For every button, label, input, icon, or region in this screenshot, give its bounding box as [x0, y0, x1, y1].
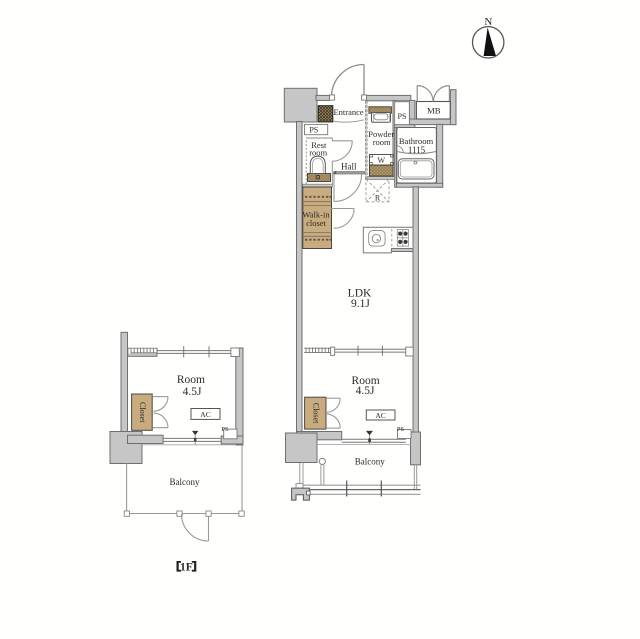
svg-text:closet: closet	[306, 218, 326, 228]
svg-text:1F: 1F	[180, 562, 193, 574]
svg-text:Room: Room	[177, 374, 205, 386]
svg-text:AC: AC	[200, 410, 210, 419]
svg-text:W: W	[378, 156, 386, 165]
svg-text:1115: 1115	[408, 145, 426, 155]
svg-text:R: R	[375, 194, 381, 203]
svg-text:4.5J: 4.5J	[183, 386, 202, 398]
svg-text:PS: PS	[398, 112, 407, 121]
svg-text:AC: AC	[375, 411, 385, 420]
svg-text:MB: MB	[427, 105, 441, 115]
svg-text:Closet: Closet	[138, 402, 147, 423]
svg-text:room: room	[373, 137, 391, 147]
svg-text:PS: PS	[309, 126, 318, 135]
svg-text:9.1J: 9.1J	[351, 298, 370, 310]
svg-text:Hall: Hall	[341, 162, 357, 172]
svg-text:PS: PS	[221, 426, 229, 433]
svg-text:N: N	[484, 16, 492, 28]
svg-text:Closet: Closet	[311, 403, 320, 424]
svg-text:room: room	[309, 147, 327, 157]
svg-text:4.5J: 4.5J	[356, 385, 375, 397]
svg-text:Entrance: Entrance	[333, 107, 363, 117]
svg-text:Balcony: Balcony	[170, 477, 200, 487]
svg-text:Balcony: Balcony	[355, 457, 385, 467]
svg-text:PS: PS	[397, 426, 405, 433]
